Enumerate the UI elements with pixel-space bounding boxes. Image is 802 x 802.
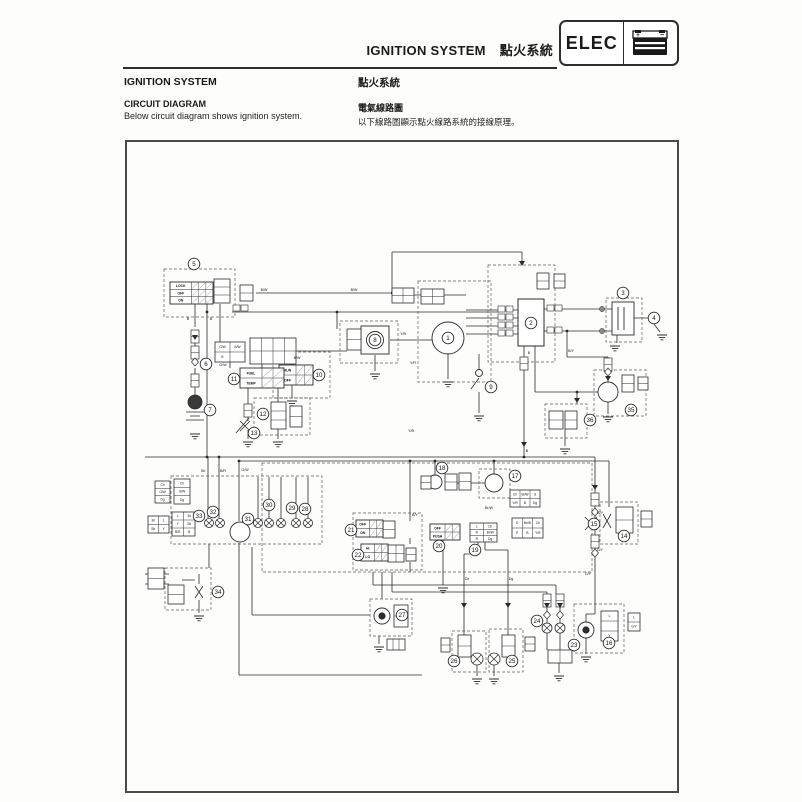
arrowhead: [574, 398, 580, 403]
wire-color-label: B/W: [351, 288, 358, 292]
arrowhead: [461, 603, 467, 608]
wire-color-label: B: [187, 317, 190, 321]
bullet-connector: [557, 611, 564, 619]
header-rule: [123, 67, 557, 69]
junction-dot: [566, 330, 569, 333]
connector-pin-label: P: [516, 531, 518, 535]
connector-pin-label: Dg: [533, 501, 537, 505]
connector-pin-label: G/W: [219, 345, 225, 349]
switch-position-label: LO: [365, 555, 370, 559]
connector-pin-label: Ch: [536, 521, 540, 525]
connector-pin-label: Ch: [180, 481, 184, 485]
ground-symbol: [443, 382, 453, 387]
ground-symbol: [610, 346, 620, 351]
ground-symbol: [581, 657, 591, 662]
callout-number: 4: [652, 315, 656, 322]
connector-pin-label: Y/R: [512, 501, 518, 505]
arrowhead: [505, 603, 511, 608]
connector-pin-label: B/W: [234, 345, 240, 349]
circuit-diagram-frame: G/WB/WBChBr/WGY/RBDgOBr/WChPBY/RLChNBr/W…: [125, 140, 679, 793]
callout-number: 17: [512, 473, 519, 480]
wire-color-label: G/Y: [597, 548, 604, 552]
connector-pin-label: Dg: [160, 498, 164, 502]
inline-connector: [506, 314, 513, 320]
callout-number: 5: [192, 261, 196, 268]
ignition-coil: [612, 302, 634, 335]
terminal: [599, 306, 604, 311]
connector-grid: [214, 279, 230, 303]
ground-symbol: [554, 676, 564, 681]
component-circle: [598, 382, 618, 402]
ground-symbol: [287, 401, 297, 406]
ground-symbol: [603, 417, 613, 422]
callout-number: 13: [251, 430, 258, 437]
section-subheading-en: CIRCUIT DIAGRAM: [124, 99, 354, 109]
wire-color-label: G/W: [241, 468, 249, 472]
section-body-en: Below circuit diagram shows ignition sys…: [124, 111, 354, 121]
wire-color-label: B/Y: [568, 349, 574, 353]
inline-connector: [506, 322, 513, 328]
ground-symbol: [472, 679, 482, 684]
callout-number: 16: [606, 640, 613, 647]
callout-number: 18: [439, 465, 446, 472]
intro-chinese: 點火系統 電氣線路圖 以下線路圖顯示點火線路系統的接線原理。: [358, 75, 618, 128]
lamp-symbol: [378, 612, 385, 619]
ground-symbol: [489, 679, 499, 684]
connector-pin-label: Sb: [151, 527, 155, 531]
switch-position-label: FUEL: [247, 371, 256, 375]
switch-position-label: HI: [366, 547, 369, 551]
elec-badge-label: ELEC: [561, 22, 624, 64]
junction-dot: [206, 456, 209, 459]
header-title-en: IGNITION SYSTEM: [366, 43, 485, 58]
switch-position-label: OFF: [177, 291, 184, 295]
junction-dot: [523, 456, 526, 459]
circuit-diagram-svg: G/WB/WBChBr/WGY/RBDgOBr/WChPBY/RLChNBr/W…: [127, 142, 677, 791]
ground-symbol: [370, 374, 380, 379]
wire-color-label: Dg: [509, 577, 514, 581]
callout-number: 25: [509, 658, 516, 665]
inline-connector: [506, 306, 513, 312]
callout-number: 19: [472, 547, 479, 554]
connector-pin-label: L: [177, 514, 179, 518]
callout-number: 10: [316, 372, 323, 379]
switch-position-label: TEMP: [246, 381, 256, 385]
arrowhead: [605, 376, 611, 381]
callout-number: 23: [571, 642, 578, 649]
connector-pin-label: L: [633, 616, 635, 620]
inline-connector: [555, 327, 562, 333]
wire-color-label: B/W: [261, 288, 268, 292]
connector-pin-label: Br/W: [524, 521, 531, 525]
wire-color-label: B: [526, 449, 529, 453]
component-circle: [476, 370, 483, 377]
switch-position-label: RUN: [284, 368, 292, 372]
wire-color-label: Br/W: [485, 506, 494, 510]
component-circle: [485, 474, 503, 492]
connector-grid: [271, 402, 286, 429]
wire-color-label: B: [528, 351, 531, 355]
elec-badge: ELEC + −: [559, 20, 679, 66]
switch-position-label: PUSH: [433, 534, 443, 538]
inline-connector: [498, 330, 505, 336]
ground-symbol: [194, 616, 204, 621]
connector-pin-label: Br/W: [487, 531, 494, 535]
wire-color-label: Sb: [201, 469, 205, 473]
callout-number: 24: [534, 618, 541, 625]
callout-number: 27: [399, 612, 406, 619]
callout-number: 7: [208, 407, 212, 414]
bullet-connector: [544, 611, 551, 619]
callout-number: 15: [591, 521, 598, 528]
wire-color-label: B/Y: [412, 513, 418, 517]
junction-dot: [238, 460, 241, 463]
connector-pin-label: G/W: [159, 490, 165, 494]
switch-position-label: OFF: [284, 378, 291, 382]
callout-number: 33: [196, 513, 203, 520]
switch-lever: [195, 378, 611, 598]
callout-number: 29: [289, 505, 296, 512]
connector-pin-label: Br/W: [521, 492, 528, 496]
ground-symbol: [190, 434, 200, 439]
callout-number: 28: [302, 506, 309, 513]
arrowhead: [592, 485, 598, 490]
connector-pin-label: B/R: [175, 530, 181, 534]
wire-color-label: B/R: [220, 469, 226, 473]
switch-position-label: OFF: [359, 523, 366, 527]
wire-color-label: B: [210, 317, 213, 321]
connector-pin-label: L: [163, 518, 165, 522]
section-subheading-zh: 電氣線路圖: [358, 101, 618, 114]
wire-color-label: Ch: [465, 577, 470, 581]
callout-number: 1: [446, 335, 450, 342]
callout-number: 22: [355, 552, 362, 559]
callout-number: 8: [373, 337, 377, 344]
switch-position-label: ON: [178, 299, 184, 303]
inline-connector: [547, 327, 554, 333]
junction-dot: [576, 391, 579, 394]
connector-pin-label: Ch: [513, 492, 517, 496]
battery-icon: + −: [624, 22, 677, 64]
inline-connector: [498, 314, 505, 320]
ground-symbol: [474, 416, 484, 421]
callout-number: 32: [210, 509, 217, 516]
connector-pin-label: B: [526, 531, 528, 535]
callout-number: 14: [621, 533, 628, 540]
switch-position-label: LOCK: [176, 284, 186, 288]
junction-dot: [409, 460, 412, 463]
wire-color-label: G/Y: [597, 511, 604, 515]
switch-position-label: ON: [360, 531, 366, 535]
switch-position-label: OFF: [434, 526, 441, 530]
callout-number: 20: [436, 543, 443, 550]
callout-number: 6: [204, 361, 208, 368]
ground-symbol: [560, 449, 570, 454]
connector-pin-label: Ch: [488, 524, 492, 528]
wire-color-label: Y/R: [410, 361, 416, 365]
junction-dot: [218, 456, 221, 459]
ground-symbol: [657, 335, 667, 340]
section-body-zh: 以下線路圖顯示點火線路系統的接線原理。: [358, 116, 618, 128]
connector-pin-label: B: [221, 355, 223, 359]
wire-color-label: B/W: [294, 356, 301, 360]
connector-pin-label: Y/R: [535, 531, 541, 535]
wire-color-label: G/Y: [585, 572, 592, 576]
arrowhead: [521, 442, 527, 447]
inline-connector: [498, 306, 505, 312]
connector-pin-label: G/Y: [631, 625, 637, 629]
connector-pin-label: L: [476, 524, 478, 528]
wire-color-label: Y/B: [408, 429, 414, 433]
wire-color-label: G/W: [219, 363, 227, 367]
callout-number: 2: [529, 320, 533, 327]
svg-text:−: −: [660, 32, 664, 39]
ground-symbol: [374, 647, 384, 652]
callout-number: 36: [587, 417, 594, 424]
junction-dot: [434, 460, 437, 463]
junction-dot: [336, 311, 339, 314]
section-heading-zh: 點火系統: [358, 75, 618, 90]
wire-color-label: Y/B: [400, 332, 406, 336]
inline-connector: [233, 305, 240, 311]
callout-number: 30: [266, 502, 273, 509]
callout-number: 26: [451, 658, 458, 665]
battery-plates: [186, 412, 204, 420]
ground-symbol: [273, 442, 283, 447]
connector-pin-label: Dg: [180, 498, 184, 502]
connector-pin-label: Dg: [488, 537, 492, 541]
ground-symbol: [243, 442, 253, 447]
intro-english: IGNITION SYSTEM CIRCUIT DIAGRAM Below ci…: [124, 76, 354, 121]
connector-pin-label: Ch: [160, 483, 164, 487]
inline-connector: [506, 330, 513, 336]
page-header-title: IGNITION SYSTEM點火系統: [0, 40, 553, 59]
section-heading-en: IGNITION SYSTEM: [124, 76, 354, 88]
callout-number: 11: [231, 376, 238, 383]
battery-symbol: [188, 395, 202, 409]
manual-page: IGNITION SYSTEM點火系統 ELEC + − IGNITION SY…: [0, 0, 802, 802]
generated-symbols: G/WB/WBChBr/WGY/RBDgOBr/WChPBY/RLChNBr/W…: [148, 258, 667, 684]
connector-pin-label: B: [188, 530, 190, 534]
callout-number: 12: [260, 411, 267, 418]
callout-number: 35: [628, 407, 635, 414]
connector-grid: [387, 639, 405, 650]
connector-pin-label: B: [524, 501, 526, 505]
connector-pin-label: Sb: [187, 522, 191, 526]
connector-pin-label: L: [609, 614, 611, 618]
callout-number: 3: [621, 290, 625, 297]
inline-connector: [547, 305, 554, 311]
callout-number: 9: [489, 384, 493, 391]
inline-connector: [241, 305, 248, 311]
header-title-zh: 點火系統: [500, 43, 553, 58]
junction-dot: [493, 460, 496, 463]
callout-number: 31: [245, 516, 252, 523]
inline-connector: [498, 322, 505, 328]
callout-number: 34: [215, 589, 222, 596]
connector-pin-label: G/W: [179, 490, 185, 494]
inline-connector: [555, 305, 562, 311]
callout-number: 21: [348, 527, 355, 534]
lamp-symbol: [582, 626, 589, 633]
terminal: [599, 328, 604, 333]
junction-dot: [206, 311, 209, 314]
